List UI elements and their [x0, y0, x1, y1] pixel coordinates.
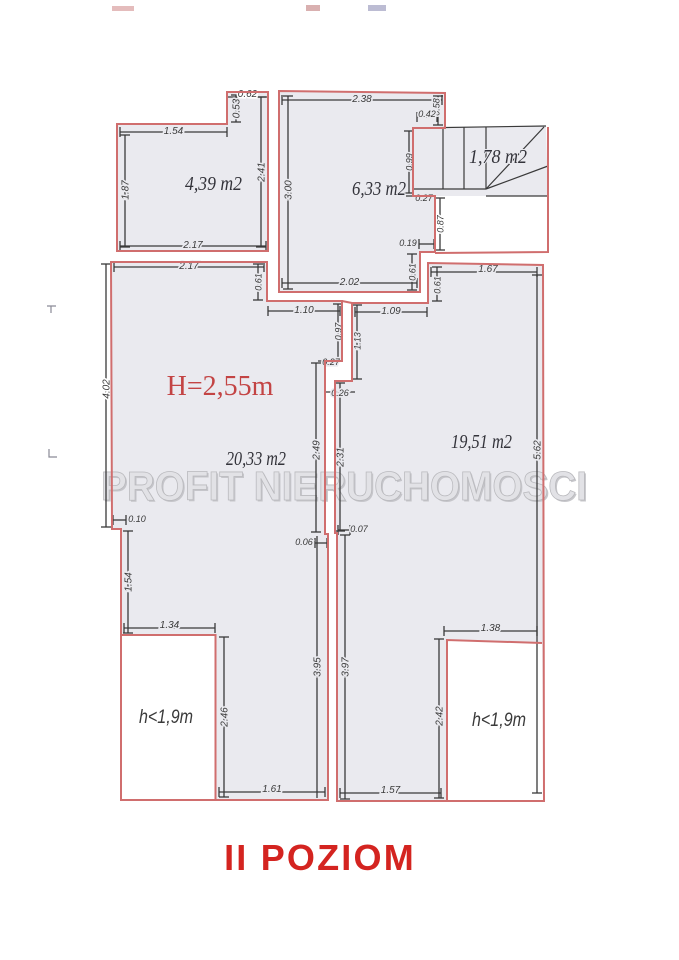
svg-text:h<1,9m: h<1,9m [472, 710, 526, 731]
svg-text:1.67: 1.67 [478, 264, 498, 275]
svg-text:5.62: 5.62 [533, 440, 544, 460]
svg-text:2.02: 2.02 [339, 277, 360, 288]
svg-text:0.61: 0.61 [408, 263, 418, 281]
svg-text:0.62: 0.62 [238, 89, 258, 100]
svg-text:2.41: 2.41 [257, 162, 268, 182]
svg-text:1.57: 1.57 [381, 785, 401, 796]
svg-text:PROFIT NIERUCHOMOSCI: PROFIT NIERUCHOMOSCI [101, 463, 587, 509]
svg-text:3.00: 3.00 [284, 180, 295, 200]
svg-text:1.54: 1.54 [124, 572, 135, 592]
svg-text:2.38: 2.38 [351, 94, 372, 105]
svg-text:3.97: 3.97 [341, 657, 352, 677]
svg-text:0.61: 0.61 [433, 276, 443, 294]
svg-text:0.19: 0.19 [399, 238, 417, 248]
svg-text:1.61: 1.61 [262, 784, 281, 795]
svg-text:0.87: 0.87 [436, 214, 446, 233]
svg-text:2.42: 2.42 [435, 706, 446, 727]
svg-text:2.49: 2.49 [312, 440, 323, 461]
svg-text:1.54: 1.54 [164, 126, 184, 137]
svg-text:2.31: 2.31 [336, 447, 347, 467]
svg-text:0.06: 0.06 [295, 537, 313, 547]
svg-text:1.34: 1.34 [160, 620, 180, 631]
svg-text:0.53: 0.53 [232, 98, 243, 118]
svg-text:H=2,55m: H=2,55m [167, 371, 274, 402]
svg-text:0.27: 0.27 [415, 193, 434, 203]
svg-text:0.26: 0.26 [331, 388, 349, 398]
svg-text:1.13: 1.13 [353, 332, 363, 350]
svg-text:2.46: 2.46 [220, 707, 231, 728]
svg-text:1.10: 1.10 [294, 305, 314, 316]
svg-text:1.09: 1.09 [381, 306, 401, 317]
svg-text:0.61: 0.61 [254, 273, 264, 291]
svg-text:0.07: 0.07 [350, 524, 369, 534]
svg-text:4,39 m2: 4,39 m2 [185, 173, 242, 195]
svg-text:1,78 m2: 1,78 m2 [469, 146, 527, 168]
svg-text:II POZIOM: II POZIOM [224, 837, 416, 878]
svg-text:6,33 m2: 6,33 m2 [352, 178, 406, 200]
svg-text:3.95: 3.95 [313, 657, 324, 677]
svg-text:20,33 m2: 20,33 m2 [226, 448, 286, 470]
svg-text:0.10: 0.10 [128, 514, 146, 524]
svg-text:h<1,9m: h<1,9m [139, 707, 193, 728]
svg-text:19,51 m2: 19,51 m2 [451, 431, 512, 453]
svg-text:1.38: 1.38 [481, 623, 501, 634]
svg-text:1.87: 1.87 [121, 180, 132, 200]
svg-text:2.17: 2.17 [182, 240, 203, 251]
svg-text:0.42: 0.42 [418, 109, 436, 119]
